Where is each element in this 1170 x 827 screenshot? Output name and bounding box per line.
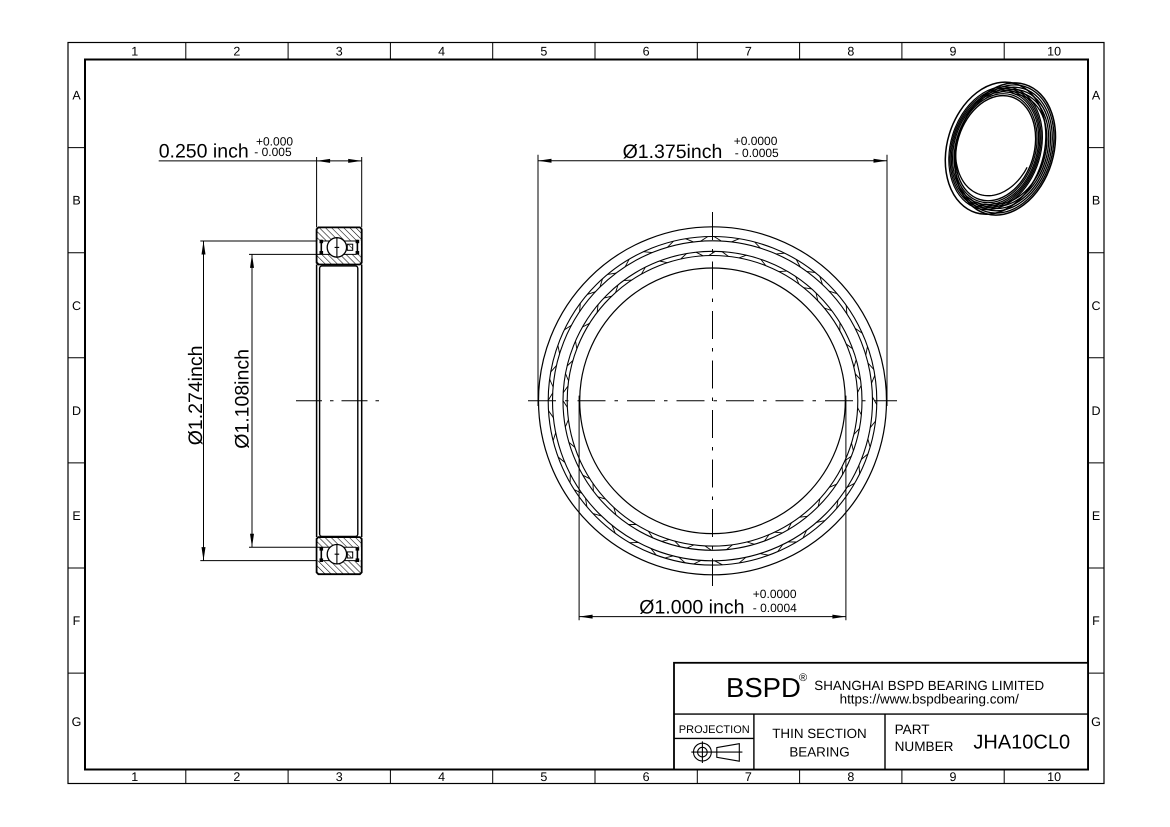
svg-text:THIN SECTION: THIN SECTION (772, 726, 866, 741)
svg-text:D: D (72, 404, 81, 418)
svg-text:9: 9 (950, 45, 957, 59)
svg-text:+0.0000: +0.0000 (753, 587, 797, 601)
svg-text:E: E (72, 509, 80, 523)
svg-text:8: 8 (847, 45, 854, 59)
svg-text:BSPD: BSPD (726, 672, 801, 703)
svg-text:F: F (73, 614, 81, 628)
svg-text:C: C (1091, 299, 1100, 313)
svg-text:- 0.0005: - 0.0005 (735, 146, 779, 160)
svg-text:6: 6 (643, 770, 650, 784)
svg-text:1: 1 (131, 45, 138, 59)
svg-text:3: 3 (336, 45, 343, 59)
svg-text:7: 7 (745, 45, 752, 59)
svg-text:Ø1.108inch: Ø1.108inch (232, 349, 254, 449)
svg-text:3: 3 (336, 770, 343, 784)
svg-text:B: B (72, 194, 80, 208)
svg-text:D: D (1091, 404, 1100, 418)
svg-text:G: G (1091, 715, 1101, 729)
svg-text:2: 2 (233, 45, 240, 59)
svg-text:6: 6 (643, 45, 650, 59)
svg-text:0.250 inch: 0.250 inch (159, 140, 249, 162)
svg-text:8: 8 (847, 770, 854, 784)
svg-text:2: 2 (233, 770, 240, 784)
svg-text:®: ® (799, 672, 807, 684)
svg-text:10: 10 (1047, 45, 1061, 59)
svg-text:PROJECTION: PROJECTION (679, 724, 750, 736)
svg-text:5: 5 (540, 45, 547, 59)
svg-text:NUMBER: NUMBER (895, 739, 954, 754)
svg-text:E: E (1092, 509, 1100, 523)
svg-text:JHA10CL0: JHA10CL0 (973, 732, 1070, 754)
svg-text:5: 5 (540, 770, 547, 784)
svg-text:PART: PART (895, 722, 930, 737)
svg-text:A: A (1092, 89, 1101, 103)
svg-text:C: C (72, 299, 81, 313)
svg-text:10: 10 (1047, 770, 1061, 784)
svg-text:G: G (72, 715, 82, 729)
svg-text:A: A (72, 89, 81, 103)
svg-text:Ø1.000 inch: Ø1.000 inch (639, 597, 744, 619)
svg-text:4: 4 (438, 770, 445, 784)
svg-text:- 0.005: - 0.005 (254, 145, 292, 159)
svg-text:Ø1.375inch: Ø1.375inch (623, 141, 723, 163)
svg-text:BEARING: BEARING (789, 744, 849, 759)
svg-text:F: F (1092, 614, 1100, 628)
svg-text:- 0.0004: - 0.0004 (753, 601, 797, 615)
svg-text:7: 7 (745, 770, 752, 784)
svg-text:https://www.bspdbearing.com/: https://www.bspdbearing.com/ (840, 692, 1020, 707)
svg-text:1: 1 (131, 770, 138, 784)
svg-text:B: B (1092, 194, 1100, 208)
svg-text:9: 9 (950, 770, 957, 784)
svg-text:4: 4 (438, 45, 445, 59)
